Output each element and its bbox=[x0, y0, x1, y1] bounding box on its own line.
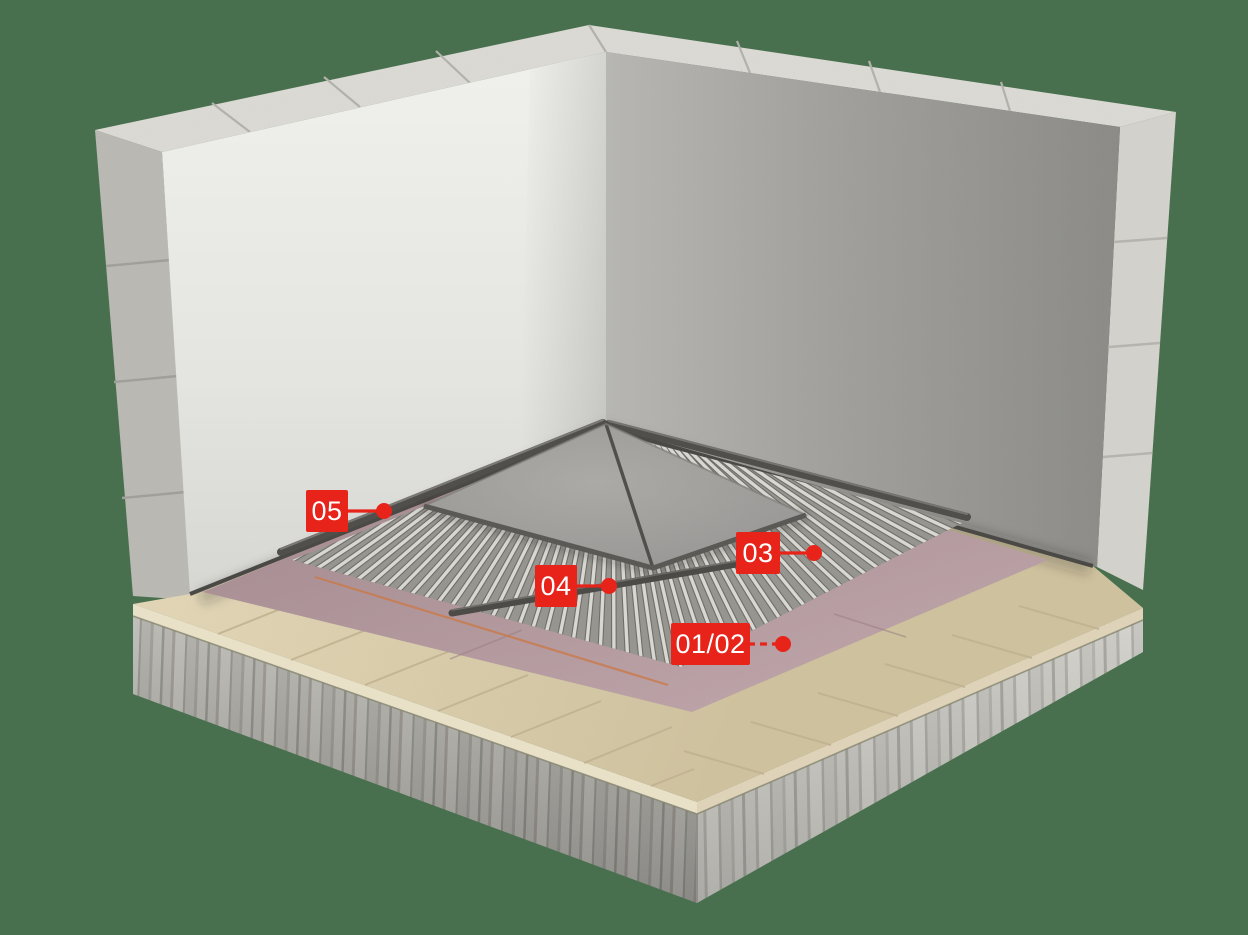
scene-illustration bbox=[0, 0, 1248, 935]
callout-05[interactable]: 05 bbox=[306, 490, 348, 532]
callout-05-label: 05 bbox=[311, 496, 342, 527]
callout-dot bbox=[601, 578, 617, 594]
callout-03[interactable]: 03 bbox=[736, 532, 780, 574]
callout-04-label: 04 bbox=[540, 571, 571, 602]
callout-01-02-label: 01/02 bbox=[675, 629, 745, 660]
callout-01-02[interactable]: 01/02 bbox=[671, 623, 750, 665]
callout-03-label: 03 bbox=[742, 538, 773, 569]
callout-dot bbox=[806, 545, 822, 561]
callout-dot bbox=[376, 503, 392, 519]
callout-04[interactable]: 04 bbox=[535, 565, 577, 607]
callout-dot bbox=[775, 636, 791, 652]
diagram-stage: 05 04 03 01/02 bbox=[0, 0, 1248, 935]
